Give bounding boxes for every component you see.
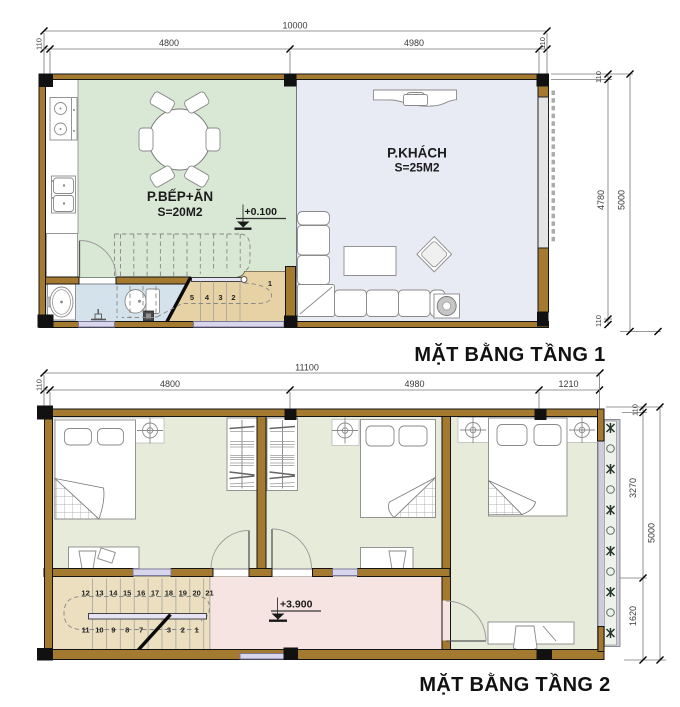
- svg-text:12: 12: [81, 589, 89, 598]
- svg-text:MẶT BẰNG TẦNG 1: MẶT BẰNG TẦNG 1: [414, 342, 605, 366]
- svg-text:19: 19: [179, 589, 187, 598]
- svg-text:P.BẾP+ĂN: P.BẾP+ĂN: [147, 189, 213, 204]
- svg-text:11: 11: [82, 626, 90, 635]
- svg-text:4980: 4980: [404, 379, 424, 389]
- svg-text:P.KHÁCH: P.KHÁCH: [387, 146, 447, 161]
- svg-text:2: 2: [231, 293, 235, 302]
- svg-text:110: 110: [631, 404, 640, 416]
- svg-text:1: 1: [195, 626, 199, 635]
- svg-text:15: 15: [123, 589, 131, 598]
- svg-text:+0.100: +0.100: [245, 206, 278, 218]
- svg-text:110: 110: [594, 71, 603, 83]
- svg-text:S=20M2: S=20M2: [157, 205, 202, 219]
- svg-text:110: 110: [538, 37, 547, 49]
- svg-text:5: 5: [190, 293, 194, 302]
- svg-text:21: 21: [205, 589, 213, 598]
- svg-text:MẶT BẰNG TẦNG 2: MẶT BẰNG TẦNG 2: [419, 672, 610, 696]
- svg-text:16: 16: [137, 589, 145, 598]
- svg-text:10000: 10000: [282, 21, 307, 31]
- svg-text:3: 3: [218, 293, 222, 302]
- svg-text:4980: 4980: [404, 38, 424, 48]
- svg-text:110: 110: [35, 38, 44, 50]
- svg-text:1: 1: [268, 279, 272, 288]
- svg-text:18: 18: [165, 589, 173, 598]
- svg-text:+3.900: +3.900: [280, 599, 313, 611]
- svg-text:20: 20: [193, 589, 201, 598]
- svg-text:9: 9: [111, 626, 115, 635]
- svg-text:8: 8: [125, 626, 129, 635]
- svg-text:5000: 5000: [617, 190, 627, 210]
- svg-text:110: 110: [594, 315, 603, 327]
- svg-text:13: 13: [95, 589, 103, 598]
- svg-text:4780: 4780: [596, 190, 606, 210]
- svg-text:1210: 1210: [558, 379, 578, 389]
- svg-text:4800: 4800: [159, 38, 179, 48]
- svg-text:S=25M2: S=25M2: [394, 161, 439, 175]
- svg-text:14: 14: [109, 589, 118, 598]
- svg-text:5000: 5000: [647, 523, 657, 543]
- svg-text:17: 17: [151, 589, 159, 598]
- svg-text:1620: 1620: [628, 606, 638, 626]
- svg-text:3270: 3270: [628, 478, 638, 498]
- svg-text:3: 3: [167, 626, 171, 635]
- svg-text:10: 10: [95, 626, 103, 635]
- svg-text:110: 110: [35, 379, 44, 391]
- svg-text:2: 2: [181, 626, 185, 635]
- svg-text:11100: 11100: [295, 363, 319, 373]
- svg-text:7: 7: [139, 626, 143, 635]
- svg-text:4800: 4800: [160, 379, 180, 389]
